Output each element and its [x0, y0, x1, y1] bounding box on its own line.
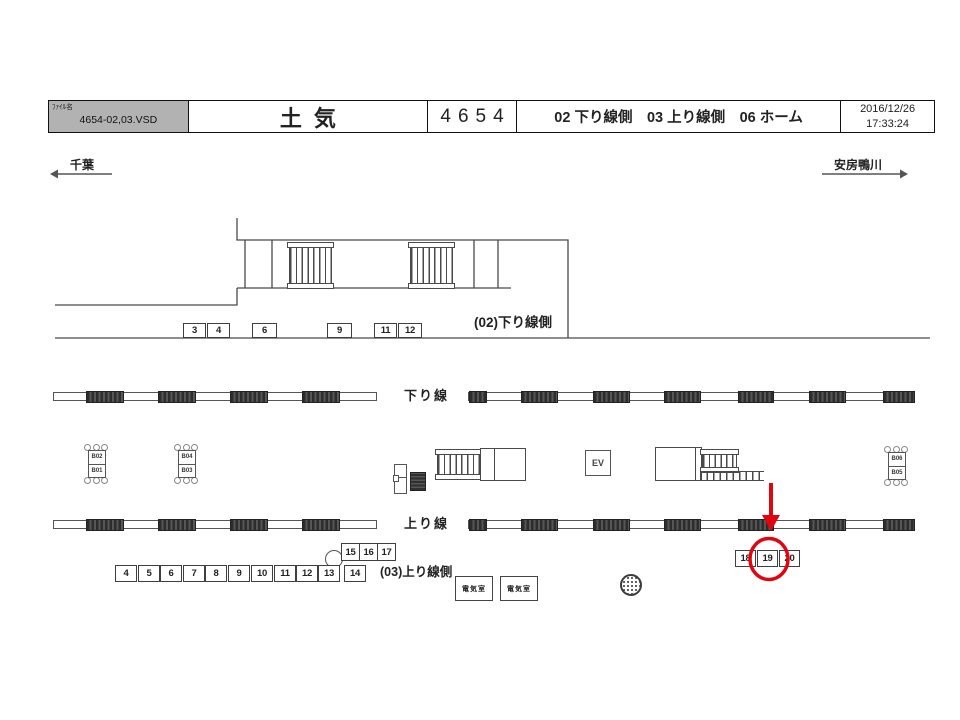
- bench-label: B04: [179, 451, 195, 465]
- track-dark-segment: [86, 519, 124, 531]
- board-down_side_row-11[interactable]: 11: [374, 323, 397, 338]
- bench-label: B03: [179, 465, 195, 478]
- track-dark-segment: [521, 391, 558, 403]
- board-down_side_row-12[interactable]: 12: [398, 323, 422, 338]
- elevator-box: EV: [585, 450, 611, 476]
- bench-B01-B02: B02B01: [85, 447, 109, 481]
- board-up_side_upper_row-16[interactable]: 16: [359, 543, 378, 561]
- track-dark-segment: [738, 519, 774, 531]
- bench-seat-icon: [93, 477, 100, 484]
- board-up_side_lower_row-5[interactable]: 5: [138, 565, 160, 582]
- track-dark-segment: [469, 391, 487, 403]
- electric-room-box: 電気室: [455, 576, 493, 601]
- board-up_side_lower_row-14[interactable]: 14: [344, 565, 366, 582]
- track-band: [53, 392, 377, 401]
- bench-seat-icon: [191, 477, 198, 484]
- track-dark-segment: [469, 519, 487, 531]
- track-dark-segment: [809, 519, 846, 531]
- board-up_side_lower_row-11[interactable]: 11: [274, 565, 296, 582]
- pillar-icon: [620, 574, 642, 596]
- track-dark-segment: [883, 519, 915, 531]
- track-dark-segment: [230, 391, 268, 403]
- board-down_side_row-9[interactable]: 9: [327, 323, 352, 338]
- board-platform_row-18[interactable]: 18: [735, 550, 756, 567]
- board-platform_row-19[interactable]: 19: [757, 550, 778, 567]
- file-name-cell: ﾌｧｲﾙ名 4654-02,03.VSD: [49, 101, 189, 132]
- track-band: [468, 520, 915, 529]
- vending-divider: [395, 477, 406, 478]
- date-value: 2016/12/26: [860, 102, 915, 116]
- track-dark-segment: [230, 519, 268, 531]
- track-dark-segment: [593, 391, 630, 403]
- up-track-label: 上り線: [404, 513, 449, 532]
- board-up_side_lower_row-8[interactable]: 8: [205, 565, 227, 582]
- board-platform_row-20[interactable]: 20: [779, 550, 800, 567]
- sheet-section-refs: 02 下り線側 03 上り線側 06 ホーム: [517, 101, 841, 132]
- time-value: 17:33:24: [866, 117, 909, 131]
- track-dark-segment: [86, 391, 124, 403]
- board-down_side_row-4[interactable]: 4: [207, 323, 230, 338]
- station-layout-sheet: ﾌｧｲﾙ名 4654-02,03.VSD 土気 4654 02 下り線側 03 …: [0, 0, 960, 720]
- up-line-side-label: (03)上り線側: [380, 561, 452, 580]
- track-dark-segment: [664, 391, 701, 403]
- board-up_side_lower_row-10[interactable]: 10: [251, 565, 273, 582]
- track-dark-segment: [302, 519, 340, 531]
- station-code: 4654: [428, 101, 517, 132]
- ramp-icon: [700, 471, 764, 481]
- track-dark-segment: [738, 391, 774, 403]
- track-dark-segment: [664, 519, 701, 531]
- board-up_side_upper_row-17[interactable]: 17: [377, 543, 396, 561]
- track-dark-segment: [593, 519, 630, 531]
- down-line-side-label: (02)下り線側: [474, 311, 552, 331]
- bench-seat-icon: [884, 479, 891, 486]
- board-up_side_lower_row-4[interactable]: 4: [115, 565, 137, 582]
- timestamp: 2016/12/26 17:33:24: [841, 101, 934, 132]
- vending-machine-icon: [394, 464, 407, 494]
- board-up_side_lower_row-9[interactable]: 9: [228, 565, 250, 582]
- direction-label-chiba: 千葉: [70, 156, 94, 173]
- bench-label: B06: [889, 453, 905, 467]
- track-dark-segment: [158, 519, 196, 531]
- station-name: 土気: [189, 101, 428, 132]
- bench-B03-B04: B04B03: [175, 447, 199, 481]
- bench-frame: B06B05: [888, 452, 906, 480]
- direction-label-awakamogawa: 安房鴨川: [834, 156, 882, 173]
- title-block: ﾌｧｲﾙ名 4654-02,03.VSD 土気 4654 02 下り線側 03 …: [48, 100, 935, 133]
- bench-seat-icon: [174, 477, 181, 484]
- bench-seat-icon: [84, 477, 91, 484]
- file-name-value: 4654-02,03.VSD: [49, 114, 188, 126]
- bench-label: B05: [889, 467, 905, 480]
- bench-B05-B06: B06B05: [885, 449, 909, 483]
- bench-seat-icon: [901, 479, 908, 486]
- board-up_side_lower_row-6[interactable]: 6: [160, 565, 182, 582]
- track-dark-segment: [521, 519, 558, 531]
- bench-seat-icon: [893, 479, 900, 486]
- board-down_side_row-6[interactable]: 6: [252, 323, 277, 338]
- board-up_side_lower_row-7[interactable]: 7: [183, 565, 205, 582]
- board-down_side_row-3[interactable]: 3: [183, 323, 206, 338]
- track-dark-segment: [809, 391, 846, 403]
- track-band: [468, 392, 915, 401]
- bench-seat-icon: [101, 477, 108, 484]
- track-dark-segment: [883, 391, 915, 403]
- hatched-box-icon: [410, 472, 426, 491]
- track-dark-segment: [302, 391, 340, 403]
- track-dark-segment: [158, 391, 196, 403]
- track-band: [53, 520, 377, 529]
- bench-label: B02: [89, 451, 105, 465]
- bench-seat-icon: [183, 477, 190, 484]
- bench-frame: B02B01: [88, 450, 106, 478]
- bench-frame: B04B03: [178, 450, 196, 478]
- file-name-label: ﾌｧｲﾙ名: [52, 102, 73, 112]
- board-up_side_upper_row-15[interactable]: 15: [341, 543, 360, 561]
- board-up_side_lower_row-13[interactable]: 13: [318, 565, 340, 582]
- down-track-label: 下り線: [404, 385, 449, 404]
- board-up_side_lower_row-12[interactable]: 12: [296, 565, 318, 582]
- electric-room-box: 電気室: [500, 576, 538, 601]
- bench-label: B01: [89, 465, 105, 478]
